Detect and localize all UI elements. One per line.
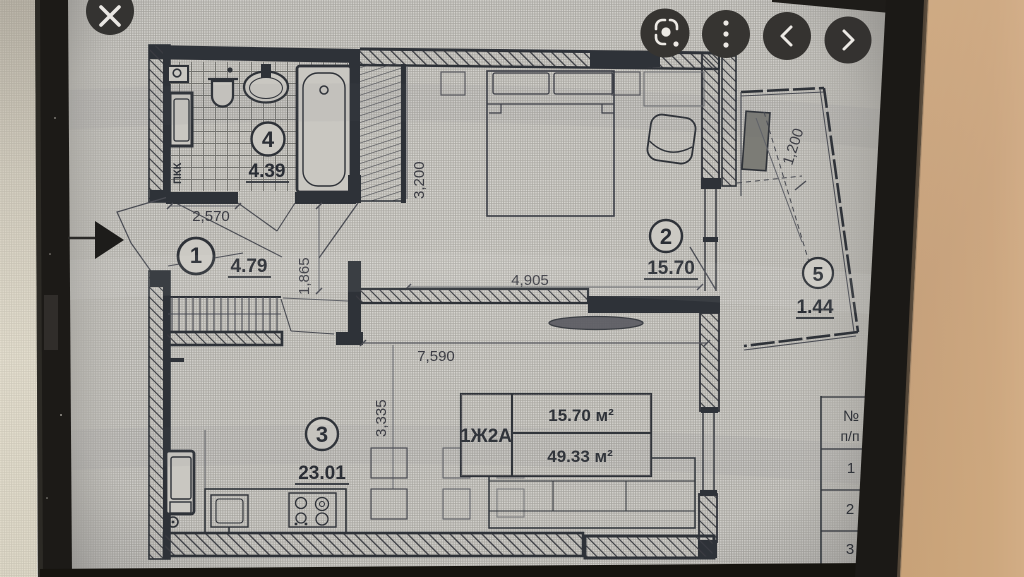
svg-text:№: №	[843, 408, 859, 425]
svg-text:4: 4	[262, 127, 275, 152]
svg-text:2,570: 2,570	[192, 208, 230, 225]
svg-text:4.39: 4.39	[249, 161, 286, 182]
svg-text:2: 2	[660, 224, 672, 249]
svg-text:п/п: п/п	[840, 428, 859, 444]
svg-text:2: 2	[846, 501, 854, 518]
svg-text:7,590: 7,590	[417, 348, 455, 365]
svg-text:3,200: 3,200	[411, 161, 428, 199]
svg-text:15.70 м²: 15.70 м²	[548, 406, 614, 425]
svg-text:3: 3	[846, 541, 854, 558]
svg-text:23.01: 23.01	[298, 463, 346, 484]
svg-text:ПКК: ПКК	[172, 162, 184, 184]
